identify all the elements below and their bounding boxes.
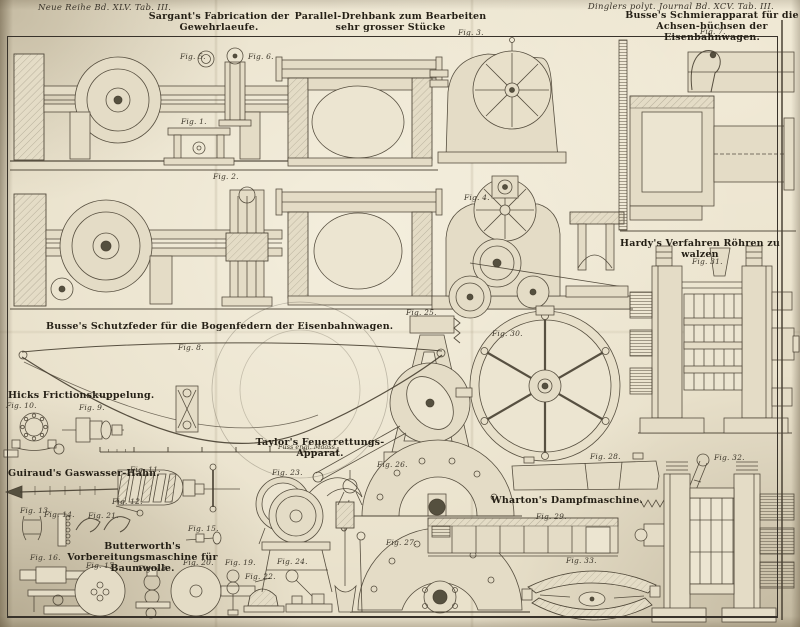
wharton-beam-fig28 (512, 453, 659, 490)
fig-label-4: Fig. 4. (464, 193, 490, 202)
fig-label-12: Fig. 12. (112, 497, 143, 506)
fig-label-23: Fig. 23. (272, 468, 303, 477)
fig-label-25: Fig. 25. (406, 308, 437, 317)
title-busse-schutzfeder: Busse's Schutzfeder für die Bogenfedern … (46, 321, 393, 332)
title-sargant: Sargant's Fabrication der Gewehrlaeufe. (140, 11, 298, 33)
fig-label-11: Fig. 11. (130, 465, 161, 474)
plate-drawings (0, 0, 800, 627)
fig-label-7: Fig. 7. (700, 27, 726, 36)
page-edge-line (781, 20, 783, 620)
wharton-rollers-fig33 (522, 571, 660, 620)
fig-label-1: Fig. 1. (181, 117, 207, 126)
fig-label-26: Fig. 26. (377, 460, 408, 469)
parallel-fig3-headstock (430, 38, 566, 164)
fig-label-28: Fig. 28. (590, 452, 621, 461)
fig-label-30: Fig. 30. (492, 329, 523, 338)
fig-label-20: Fig. 20. (183, 558, 214, 567)
sargant-fig1-press (164, 128, 234, 165)
fig-label-5: Fig. 5. (180, 52, 206, 61)
sargant-lathe-view-1 (10, 54, 303, 161)
title-hicks: Hicks Frictionskuppelung. (8, 390, 154, 401)
fig-label-17: Fig. 17. (86, 561, 117, 570)
fig-label-6: Fig. 6. (248, 52, 274, 61)
fig-label-3: Fig. 3. (458, 28, 484, 37)
fig-label-9: Fig. 9. (79, 403, 105, 412)
fig-label-15: Fig. 15. (188, 524, 219, 533)
fig-label-24: Fig. 24. (277, 557, 308, 566)
fig-label-14: Fig. 14. (44, 510, 75, 519)
hicks-coupling-figs9-10 (4, 413, 124, 457)
parallel-lathe-view-2 (276, 189, 442, 305)
fig-label-29: Fig. 29. (536, 512, 567, 521)
hardy-rolling-mill-fig31 (630, 246, 799, 433)
fig-label-2: Fig. 2. (213, 172, 239, 181)
fig-label-8: Fig. 8. (178, 343, 204, 352)
fig-label-10: Fig. 10. (6, 401, 37, 410)
engraving-plate: Neue Reihe Bd. XLV. Tab. III. Dinglers p… (0, 0, 800, 627)
center-press-column (222, 187, 272, 306)
title-wharton: Wharton's Dampfmaschine. (487, 495, 647, 506)
fig-label-18: Fig. 18. (138, 564, 169, 573)
fig-label-27: Fig. 27. (386, 538, 417, 547)
fig-label-16: Fig. 16. (30, 553, 61, 562)
wharton-beam-fig29 (428, 518, 618, 556)
fig-label-32: Fig. 32. (714, 453, 745, 462)
fig-label-21: Fig. 21. (88, 511, 119, 520)
fig-label-31: Fig. 31. (692, 257, 723, 266)
fig-label-19: Fig. 19. (225, 558, 256, 567)
fig-label-33: Fig. 33. (566, 556, 597, 565)
fig-label-22: Fig. 22. (245, 572, 276, 581)
parallel-lathe-view-1 (276, 57, 442, 166)
scale-bar-label: Fuss engl. Maass. (278, 443, 337, 451)
busse-schmierapparat-fig7 (619, 40, 794, 230)
